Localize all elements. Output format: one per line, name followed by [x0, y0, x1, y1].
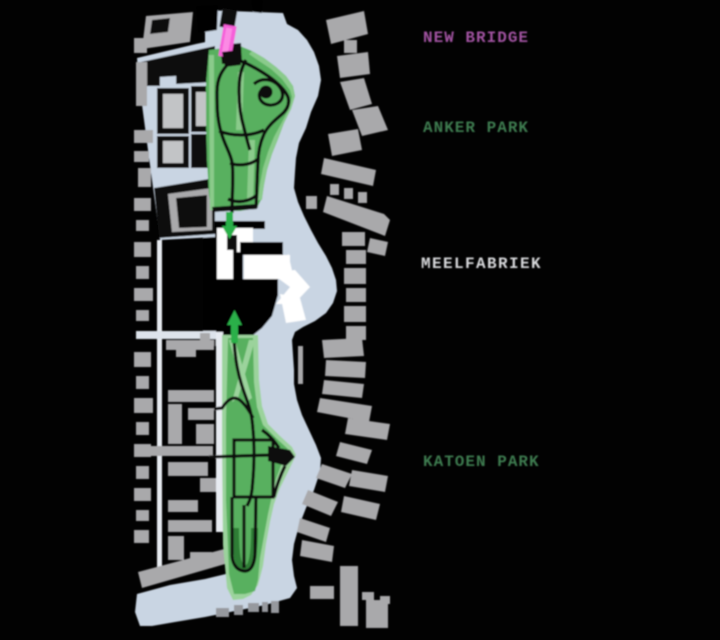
- svg-text:MEELFABRIEK: MEELFABRIEK: [421, 255, 542, 273]
- svg-text:NEW BRIDGE: NEW BRIDGE: [423, 29, 529, 47]
- svg-text:KATOEN PARK: KATOEN PARK: [423, 453, 540, 471]
- svg-text:ANKER PARK: ANKER PARK: [423, 119, 529, 137]
